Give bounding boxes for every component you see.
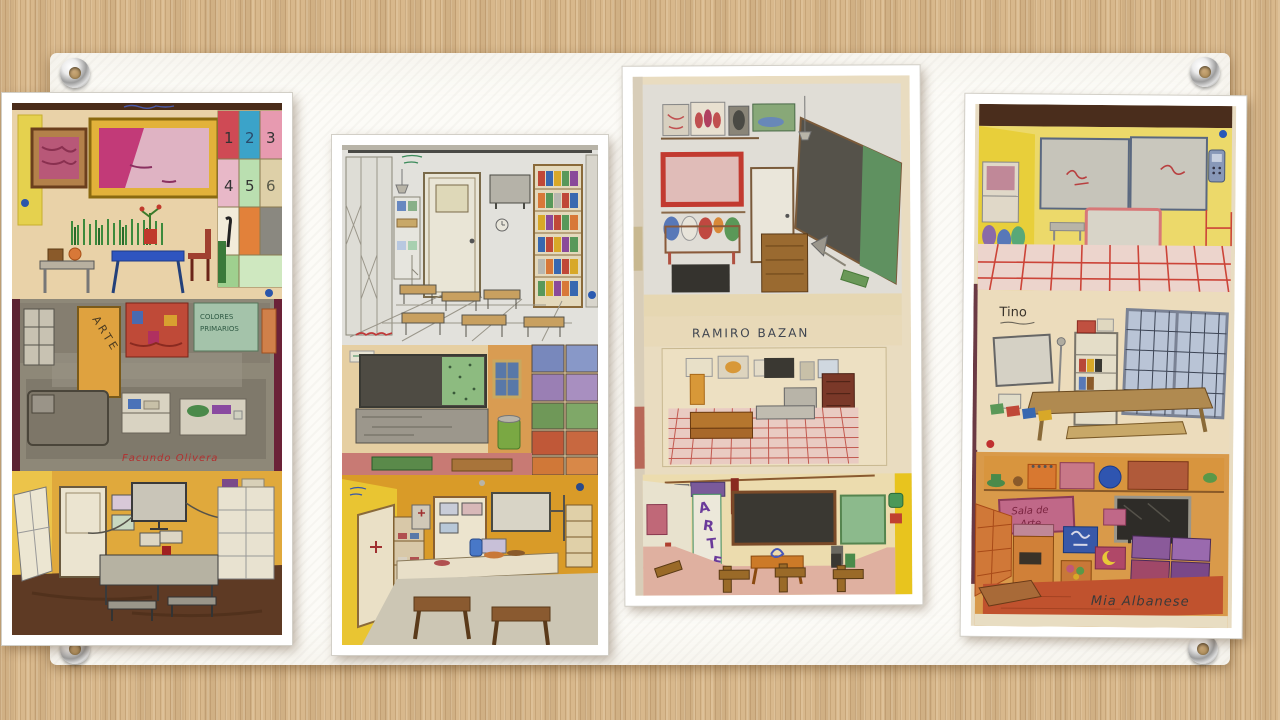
photo4-mia-name: Mia Albanese: [1091, 594, 1190, 610]
photo-classroom-drawings-4: Tino: [961, 94, 1247, 638]
photo-classroom-drawings-1: 1 2 3 4 5 6: [2, 93, 292, 645]
photo1-colores-line2: PRIMARIOS: [200, 325, 239, 333]
photo4-drawing-top: [978, 104, 1233, 292]
photo3-drawing-middle: [662, 347, 887, 466]
photo1-drawing-middle: ARTE COLORES PRIMARIOS: [12, 299, 282, 471]
grid-number-6: 6: [266, 177, 276, 195]
photo3-drawing-canvas: RAMIRO BAZAN: [633, 75, 913, 595]
photo2-drawing-middle: [342, 345, 598, 475]
photo4-tino-name: Tino: [998, 305, 1027, 320]
photo4-drawing-bottom: Sala de Arte: [975, 452, 1230, 628]
svg-text:Sala de: Sala de: [1011, 505, 1049, 518]
photo1-number-grid: 1 2 3 4 5 6: [218, 111, 282, 287]
photo1-drawing-bottom: [12, 471, 282, 635]
grid-number-2: 2: [245, 129, 255, 147]
photo-classroom-drawings-2: [332, 135, 608, 655]
photo1-drawing-top: 1 2 3 4 5 6: [12, 103, 282, 299]
slide-background: 1 2 3 4 5 6: [0, 0, 1280, 720]
photo3-drawing-bottom: A R T E: [643, 473, 913, 595]
photo4-drawing-canvas: Tino: [971, 104, 1237, 628]
grid-number-5: 5: [245, 177, 255, 195]
photo3-author-name: RAMIRO BAZAN: [692, 326, 809, 341]
grommet-bottom-right-icon: [1188, 634, 1218, 664]
photo2-drawing-canvas: [342, 145, 598, 645]
photo-classroom-drawings-3: RAMIRO BAZAN: [623, 65, 923, 606]
photo4-drawing-middle: Tino: [976, 290, 1230, 452]
grid-number-1: 1: [224, 129, 234, 147]
grid-number-3: 3: [266, 129, 276, 147]
photo2-drawing-top: [342, 145, 598, 345]
grommet-top-right-icon: [1190, 57, 1220, 87]
photo1-drawing-canvas: 1 2 3 4 5 6: [12, 103, 282, 635]
photo4-moon-poster: [1095, 547, 1125, 569]
photo2-drawing-bottom: [342, 475, 598, 645]
grid-number-4: 4: [224, 177, 234, 195]
photo1-colores-line1: COLORES: [200, 313, 234, 321]
grommet-top-left-icon: [60, 58, 90, 88]
photo1-signature: Facundo Olivera: [122, 453, 218, 464]
photo3-drawing-top: [643, 83, 902, 316]
